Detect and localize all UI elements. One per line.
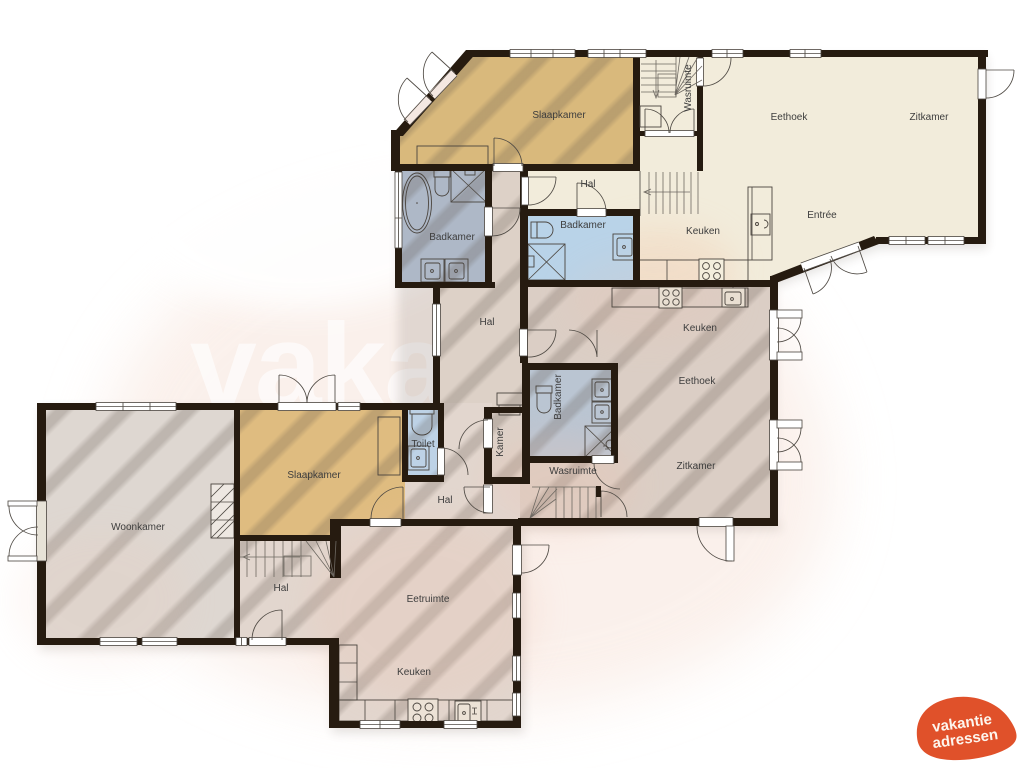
svg-text:Keuken: Keuken — [683, 323, 717, 334]
svg-text:Slaapkamer: Slaapkamer — [287, 470, 341, 481]
svg-text:Woonkamer: Woonkamer — [111, 522, 165, 533]
svg-text:Zitkamer: Zitkamer — [677, 461, 717, 472]
svg-text:Eetruimte: Eetruimte — [407, 594, 450, 605]
svg-text:Zitkamer: Zitkamer — [910, 112, 950, 123]
svg-text:Eethoek: Eethoek — [679, 376, 717, 387]
svg-text:Keuken: Keuken — [397, 667, 431, 678]
svg-text:Hal: Hal — [479, 317, 494, 328]
svg-text:Wasruimte: Wasruimte — [549, 466, 597, 477]
svg-text:Wasruimte: Wasruimte — [683, 64, 694, 112]
svg-text:Keuken: Keuken — [686, 226, 720, 237]
svg-text:Toilet: Toilet — [411, 439, 435, 450]
svg-text:Hal: Hal — [580, 179, 595, 190]
svg-text:Eethoek: Eethoek — [771, 112, 809, 123]
svg-text:Slaapkamer: Slaapkamer — [532, 110, 586, 121]
svg-text:Hal: Hal — [273, 583, 288, 594]
svg-text:Badkamer: Badkamer — [560, 220, 606, 231]
svg-text:Hal: Hal — [437, 495, 452, 506]
svg-text:Badkamer: Badkamer — [553, 374, 564, 420]
svg-text:Kamer: Kamer — [495, 427, 506, 457]
svg-text:Badkamer: Badkamer — [429, 232, 475, 243]
svg-text:Entrée: Entrée — [807, 210, 837, 221]
